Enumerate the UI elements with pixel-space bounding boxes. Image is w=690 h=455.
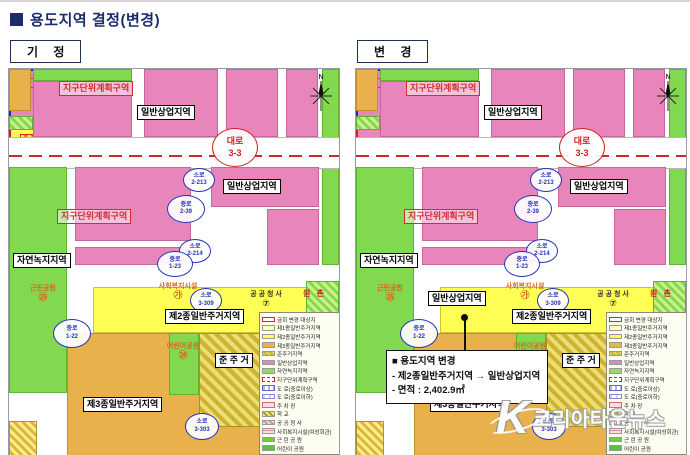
legend-label: 학 교 xyxy=(277,410,289,418)
natural-green-zone-label: 자연녹지지역 xyxy=(360,253,418,268)
legend-swatch xyxy=(262,377,275,383)
legend-swatch xyxy=(262,360,275,366)
map-existing: 주 차 장 ⑤ 주 차 장 ⑧ 일반상업지역 지구단위계획구역 일반상업지역 지… xyxy=(8,68,340,455)
legend-swatch xyxy=(609,368,622,374)
north-letter: N xyxy=(665,74,670,81)
parcel-commercial-g xyxy=(614,209,666,265)
legend-item: 준주거지역 xyxy=(609,349,686,358)
legend-swatch xyxy=(609,377,622,383)
road-label-soro-3-303: 소로3-303 xyxy=(185,413,219,440)
public-office-label: 공 공 청 사 ⑦ xyxy=(584,289,642,308)
legend-item: 금회 변경 대상지 xyxy=(609,315,686,324)
district-plan-label-mid: 지구단위계획구역 xyxy=(404,209,478,224)
legend-label: 제3종일반주거지역 xyxy=(624,341,668,349)
changed-parcel-zone-label: 일반상업지역 xyxy=(428,291,486,306)
legend-label: 공 공 청 사 xyxy=(277,418,302,426)
natural-green-zone-label: 자연녹지지역 xyxy=(13,253,71,268)
map-panels: 기 정 주 차 장 ⑤ 주 차 장 ⑧ 일반상업지역 지구단위계획구역 일반상업… xyxy=(8,40,690,455)
callout-title: ■ 용도지역 변경 xyxy=(392,355,542,370)
legend-swatch xyxy=(262,402,275,408)
north-letter: N xyxy=(318,74,323,81)
welfare-facility-label: 사회복지시설 ㉮ xyxy=(149,281,207,300)
legend-item: 제3종일반주거지역 xyxy=(262,341,339,350)
parcel-hatched-bottomleft xyxy=(9,421,37,455)
public-office-label: 공 공 청 사 ⑦ xyxy=(237,289,295,308)
parcel-natural-green xyxy=(9,167,67,393)
watermark: K 코리아타운뉴스 xyxy=(496,383,687,451)
parcel-hatched-topleft xyxy=(356,116,380,130)
legend-swatch xyxy=(262,385,275,391)
road-label-jungro-1-22: 중로1-22 xyxy=(400,319,438,348)
major-road-band xyxy=(9,137,339,169)
panel-tag-existing: 기 정 xyxy=(10,40,81,63)
parcel-commercial-b xyxy=(491,69,565,137)
legend-swatch xyxy=(262,351,275,357)
legend-swatch xyxy=(262,420,275,426)
legend-swatch xyxy=(262,437,275,443)
legend-label: 제3종일반주거지역 xyxy=(277,341,321,349)
major-road-band xyxy=(356,137,686,169)
panel-existing: 기 정 주 차 장 ⑤ 주 차 장 ⑧ 일반상업지역 지구단위계획구역 일반상업… xyxy=(8,40,338,455)
parcel-hatched-bottomleft xyxy=(356,421,384,455)
north-arrow-icon: N xyxy=(653,71,683,115)
legend-swatch xyxy=(609,317,622,323)
callout-leader-line xyxy=(464,320,466,350)
legend-label: 자연녹지지역 xyxy=(624,367,654,375)
parcel-commercial-g xyxy=(267,209,319,265)
parcel-hatched-topleft xyxy=(9,116,33,130)
legend-swatch xyxy=(262,428,275,434)
legend-label: 제1종일반주거지역 xyxy=(277,324,321,332)
commercial-zone-label-mid: 일반상업지역 xyxy=(570,179,628,194)
semi-residential-zone-label: 준 주 거 xyxy=(215,353,253,368)
legend-item: 제1종일반주거지역 xyxy=(262,324,339,333)
residential2-zone-label: 제2종일반주거지역 xyxy=(512,309,591,324)
district-plan-label-top: 지구단위계획구역 xyxy=(406,81,480,96)
map-changed: 주 차 장 ⑤ 주 차 장 ⑧ 일반상업지역 지구단위계획구역 일반상업지역 지… xyxy=(355,68,687,455)
legend-label: 자연녹지지역 xyxy=(277,367,307,375)
district-plan-label-top: 지구단위계획구역 xyxy=(59,81,133,96)
panel-changed: 변 경 주 차 장 ⑤ 주 차 장 ⑧ 일반상업지역 지구단위계획구역 일반상업… xyxy=(355,40,685,455)
legend-label: 사회복지시설(여성회관) xyxy=(277,427,331,435)
district-plan-label-mid: 지구단위계획구역 xyxy=(57,209,131,224)
parcel-commercial-b2 xyxy=(573,69,625,137)
legend-body: 금회 변경 대상지제1종일반주거지역제2종일반주거지역제3종일반주거지역준주거지… xyxy=(262,315,339,453)
road-label-jungro-1-22: 중로1-22 xyxy=(53,319,91,348)
road-label-daero-3-3: 대로3-3 xyxy=(212,128,258,167)
road-label-jungro-1-23: 중로1-23 xyxy=(157,251,193,277)
parcel-green-top xyxy=(380,69,479,81)
legend-item: 공 공 청 사 xyxy=(262,418,339,427)
legend-label: 일반상업지역 xyxy=(277,358,307,366)
legend-label: 주 차 장 xyxy=(277,401,295,409)
legend-label: 제1종일반주거지역 xyxy=(624,324,668,332)
residential3-zone-label: 제3종일반주거지역 xyxy=(83,397,162,412)
legend-item: 도 로(중로이상) xyxy=(262,384,339,393)
legend-item: 근 린 공 원 xyxy=(262,435,339,444)
road-label-soro-2-213: 소로2-213 xyxy=(183,168,215,192)
road-label-soro-2-213: 소로2-213 xyxy=(530,168,562,192)
woncheon-label: 원 촌 xyxy=(303,288,326,299)
legend-item: 주 차 장 xyxy=(262,401,339,410)
legend-label: 금회 변경 대상지 xyxy=(624,315,663,323)
legend-swatch xyxy=(262,411,275,417)
legend-item: 제3종일반주거지역 xyxy=(609,341,686,350)
residential2-zone-label: 제2종일반주거지역 xyxy=(165,309,244,324)
welfare-facility-label: 사회복지시설 ㉮ xyxy=(496,281,554,300)
legend-label: 금회 변경 대상지 xyxy=(277,315,316,323)
legend-swatch xyxy=(262,325,275,331)
legend-label: 근 린 공 원 xyxy=(277,435,302,443)
legend-item: 제2종일반주거지역 xyxy=(262,332,339,341)
legend-swatch xyxy=(262,317,275,323)
legend-swatch xyxy=(262,368,275,374)
legend-item: 도 로(중로이하) xyxy=(262,392,339,401)
page: 용도지역 결정(변경) 기 정 주 차 장 ⑤ 주 차 장 ⑧ 일반상업지역 지… xyxy=(0,2,690,455)
road-centerline xyxy=(356,155,686,157)
legend-label: 일반상업지역 xyxy=(624,358,654,366)
legend-label: 제2종일반주거지역 xyxy=(277,332,321,340)
legend-item: 금회 변경 대상지 xyxy=(262,315,339,324)
semi-residential-zone-label: 준 주 거 xyxy=(562,353,600,368)
legend-item: 자연녹지지역 xyxy=(609,367,686,376)
parcel-commercial-b2 xyxy=(226,69,278,137)
legend-swatch xyxy=(262,342,275,348)
north-arrow-icon: N xyxy=(306,71,336,115)
legend-label: 도 로(중로이상) xyxy=(277,384,313,392)
legend-item: 일반상업지역 xyxy=(262,358,339,367)
parcel-commercial-b xyxy=(144,69,218,137)
parcel-green-top xyxy=(33,69,132,81)
legend-label: 어린이 공원 xyxy=(277,444,304,452)
parcel-residential3-topleft xyxy=(9,69,31,111)
road-centerline xyxy=(9,155,339,157)
panel-tag-changed: 변 경 xyxy=(357,40,428,63)
legend-swatch xyxy=(609,342,622,348)
legend-swatch xyxy=(609,334,622,340)
title-text: 용도지역 결정(변경) xyxy=(30,9,160,30)
legend-label: 준주거지역 xyxy=(277,350,302,358)
legend-item: 제2종일반주거지역 xyxy=(609,332,686,341)
road-label-jungro-1-23: 중로1-23 xyxy=(504,251,540,277)
legend-swatch xyxy=(609,351,622,357)
road-label-daero-3-3: 대로3-3 xyxy=(559,128,605,167)
road-label-jungro-2-39: 중로2-39 xyxy=(167,195,205,223)
legend-swatch xyxy=(262,334,275,340)
legend-item: 일반상업지역 xyxy=(609,358,686,367)
commercial-zone-label-top: 일반상업지역 xyxy=(484,105,542,120)
watermark-k-logo-icon: K xyxy=(496,394,529,440)
legend-label: 제2종일반주거지역 xyxy=(624,332,668,340)
legend-item: 자연녹지지역 xyxy=(262,367,339,376)
commercial-zone-label-top: 일반상업지역 xyxy=(137,105,195,120)
page-title: 용도지역 결정(변경) xyxy=(10,9,690,30)
legend-swatch xyxy=(262,394,275,400)
neighborhood-park-label: 근린공원 ㉕ xyxy=(368,283,412,302)
legend-label: 준주거지역 xyxy=(624,350,649,358)
children-park-label: 어린이공원 ㉔ xyxy=(153,341,213,360)
neighborhood-park-label: 근린공원 ㉕ xyxy=(21,283,65,302)
legend-item: 학 교 xyxy=(262,410,339,419)
commercial-zone-label-mid: 일반상업지역 xyxy=(223,179,281,194)
legend-item: 사회복지시설(여성회관) xyxy=(262,427,339,436)
legend-swatch xyxy=(609,325,622,331)
woncheon-label: 원 촌 xyxy=(650,288,673,299)
title-square-icon xyxy=(10,13,23,26)
legend-swatch xyxy=(609,360,622,366)
map-legend: 금회 변경 대상지제1종일반주거지역제2종일반주거지역제3종일반주거지역준주거지… xyxy=(259,312,340,455)
parcel-residential3-topleft xyxy=(356,69,378,111)
watermark-text: 코리아타운뉴스 xyxy=(533,403,665,432)
legend-item: 어린이 공원 xyxy=(262,444,339,453)
legend-label: 지구단위계획구역 xyxy=(277,375,318,383)
legend-item: 제1종일반주거지역 xyxy=(609,324,686,333)
legend-item: 지구단위계획구역 xyxy=(262,375,339,384)
legend-label: 도 로(중로이하) xyxy=(277,393,313,401)
road-label-jungro-2-39: 중로2-39 xyxy=(514,195,552,223)
legend-swatch xyxy=(262,445,275,451)
legend-item: 준주거지역 xyxy=(262,349,339,358)
